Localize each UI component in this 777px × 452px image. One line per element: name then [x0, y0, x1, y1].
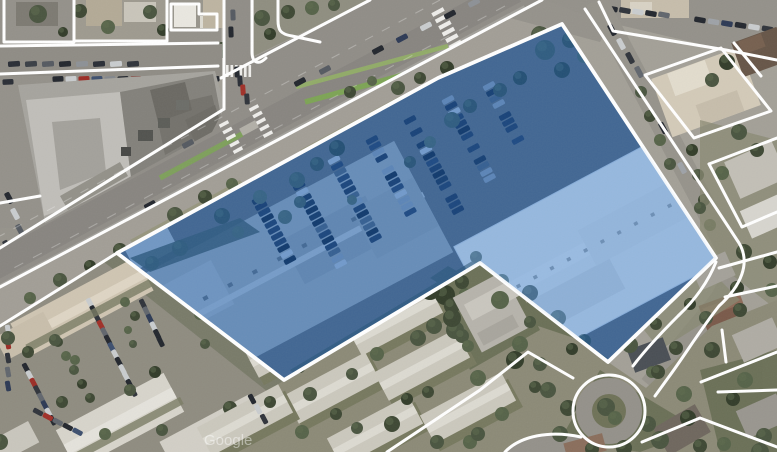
svg-text:Google: Google — [204, 432, 252, 449]
